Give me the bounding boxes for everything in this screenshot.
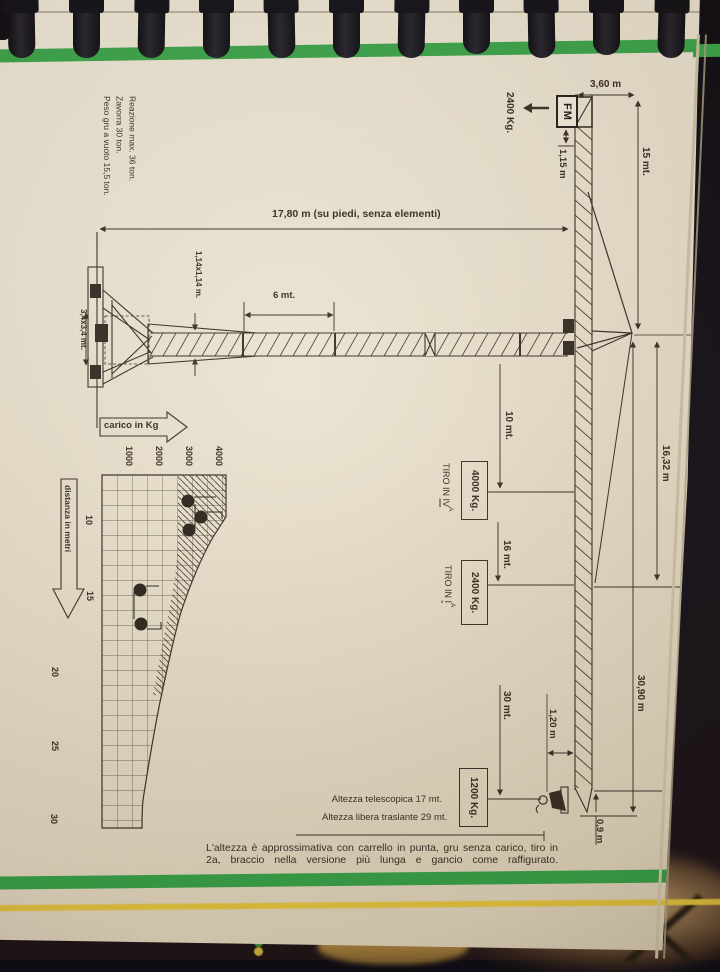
load-2400-box: 2400 Kg. — [461, 560, 488, 625]
dim-section-label: 1,14x1,14 m. — [194, 251, 203, 298]
tiro-i-label: TIRO IN IA — [443, 565, 456, 607]
binding-ring — [267, 0, 295, 58]
binding-ring — [73, 0, 100, 58]
xtick-3000: 3000 — [184, 446, 194, 466]
load-4000-box: 4000 Kg. — [461, 461, 488, 520]
load-chart — [53, 412, 226, 828]
counterweight-load-label: 2400 Kg. — [504, 92, 515, 133]
tiro-iv-label: TIRO IN IVA — [441, 463, 454, 511]
ytick-15: 15 — [85, 591, 95, 601]
dim-trolley-label: 1,20 m — [547, 709, 558, 739]
dim-jib-total-label: 30,90 m — [635, 675, 646, 712]
fm-logo: FM — [561, 103, 573, 121]
footer-caption: L'altezza è approssimativa con carrello … — [206, 842, 558, 866]
note-peso: Peso gru a vuoto 15,5 ton. — [100, 96, 113, 196]
load-2400-label: 2400 Kg. — [469, 572, 480, 613]
ytick-25: 25 — [50, 741, 60, 751]
binding-ring — [593, 0, 620, 55]
dim-ballast-height-label: 1,15 m — [557, 149, 568, 179]
ytick-10: 10 — [84, 515, 94, 525]
load-4000-label: 4000 Kg. — [469, 470, 480, 511]
note-reazione: Reazione max. 36 ton. — [126, 96, 139, 196]
load-1200-label: 1200 Kg. — [468, 777, 479, 818]
dim-head-label: 15 mt. — [640, 147, 651, 176]
chart-ylabel: distanza in metri — [63, 485, 73, 552]
catalog-page: Reazione max. 36 ton. Zavorra 30 ton. Pe… — [0, 0, 720, 960]
radius-10-label: 10 mt. — [503, 411, 514, 440]
dim-tower-label: 17,80 m (su piedi, senza elementi) — [272, 208, 441, 220]
fm-logo-box: FM — [556, 95, 578, 128]
dim-tip-label: 0,9 m — [594, 819, 605, 843]
radius-30-label: 30 mt. — [501, 691, 512, 720]
footer-note-2: Altezza libera traslante 29 mt. — [322, 812, 442, 823]
footer-note-1: Altezza telescopica 17 mt. — [322, 794, 442, 805]
binding-ring — [203, 0, 230, 58]
dim-counterjib-label: 3,60 m — [590, 79, 621, 90]
side-notes: Reazione max. 36 ton. Zavorra 30 ton. Pe… — [100, 96, 138, 196]
dim-element-label: 6 mt. — [273, 290, 295, 301]
ytick-20: 20 — [50, 667, 60, 677]
binding-ring — [527, 0, 555, 58]
load-1200-box: 1200 Kg. — [459, 768, 488, 827]
xtick-2000: 2000 — [154, 446, 164, 466]
xtick-1000: 1000 — [124, 446, 134, 466]
binding-ring — [333, 0, 360, 58]
background-object-yellow — [254, 947, 263, 956]
crane-structure — [88, 95, 696, 816]
dim-tie-label: 16,32 m — [660, 445, 671, 482]
radius-16-label: 16 mt. — [501, 540, 512, 569]
binding-ring — [463, 0, 490, 54]
xtick-4000: 4000 — [214, 446, 224, 466]
photo-of-crane-catalog-page: { "side_notes": { "line1": "Peso gru a v… — [0, 0, 720, 960]
dim-base-label: 3,4x3,4 mt. — [79, 309, 88, 350]
note-zavorra: Zavorra 30 ton. — [113, 96, 126, 196]
binding-ring — [397, 0, 425, 58]
binding-ring — [137, 0, 165, 58]
binding-ring — [7, 0, 35, 58]
ytick-30: 30 — [49, 814, 59, 824]
chart-xlabel: carico in Kg — [104, 420, 158, 431]
binding-ring — [657, 0, 686, 58]
